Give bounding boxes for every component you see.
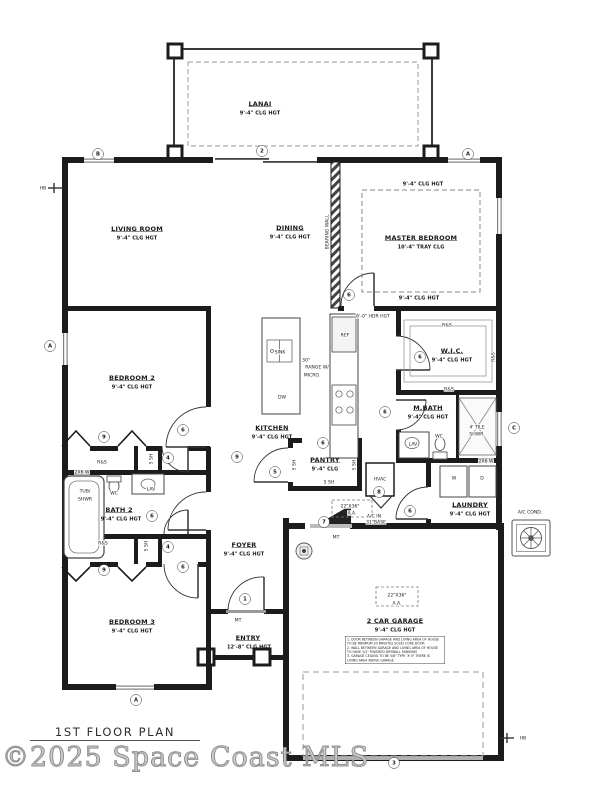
label-laundry: LAUNDRY xyxy=(452,501,488,509)
label-mt: MT xyxy=(234,617,242,623)
marker-8: 8 xyxy=(373,486,385,498)
label-9-4-clg-hgt: 9'-4" CLG HGT xyxy=(252,434,293,440)
garage-utility-icon xyxy=(296,543,312,559)
label-2x6-w: 2X6 W xyxy=(478,458,494,464)
label-9-4-clg-hgt: 9'-4" CLG HGT xyxy=(408,414,449,420)
label-r-s: R&S xyxy=(444,386,455,392)
marker-a: A xyxy=(44,340,56,352)
label-9-4-clg-hgt: 9'-4" CLG HGT xyxy=(240,110,281,116)
label-9-4-clg-hgt: 9'-4" CLG HGT xyxy=(224,551,265,557)
marker-9: 9 xyxy=(231,451,243,463)
label-2x6-w: 2X6 W xyxy=(74,469,90,475)
label-tub: TUB/ xyxy=(79,488,91,494)
label-9-4-clg-hgt: 9'-4" CLG HGT xyxy=(101,516,142,522)
label-range-w: RANGE W/ xyxy=(305,364,330,370)
garage-notes-box: 1. DOOR BETWEEN GARAGE AND LIVING AREA O… xyxy=(345,636,445,664)
garage-note-line: LIVING AREA ABOVE GARAGE xyxy=(347,658,443,662)
label-22-x36: 22"X36" xyxy=(340,503,360,509)
marker-2: 2 xyxy=(256,145,268,157)
label-hb: HB xyxy=(519,735,527,741)
label-6-0-hdr-hgt: 6'-0" HDR HGT xyxy=(356,313,391,319)
label-dw: DW xyxy=(277,394,286,400)
label-d: D xyxy=(480,475,485,481)
marker-a: A xyxy=(462,148,474,160)
label-sink: SINK xyxy=(274,349,286,355)
marker-a: A xyxy=(130,694,142,706)
label-bath-2: BATH 2 xyxy=(105,506,132,514)
label-wc: WC xyxy=(110,490,119,496)
label-w: W xyxy=(451,475,457,481)
label-bedroom-2: BEDROOM 2 xyxy=(109,374,155,382)
label-entry: ENTRY xyxy=(236,634,261,642)
floor-plan-linework xyxy=(0,0,604,800)
label-9-4-clg-hgt: 9'-4" CLG HGT xyxy=(270,234,311,240)
label-30: 30" xyxy=(302,357,311,363)
marker-3: 3 xyxy=(388,757,400,769)
marker-9: 9 xyxy=(98,564,110,576)
label-bearing-wall: BEARING WALL xyxy=(324,214,330,250)
label-r-s: R&S xyxy=(97,459,108,465)
label-lav: LAV xyxy=(146,486,156,492)
label-9-4-clg: 9'-4" CLG xyxy=(312,466,339,472)
label-micro: MICRO. xyxy=(303,372,321,378)
label-a-a: A.A. xyxy=(347,510,357,516)
marker-9: 9 xyxy=(98,431,110,443)
marker-6: 6 xyxy=(414,351,426,363)
label-m-bath: M.BATH xyxy=(413,404,442,412)
marker-6: 6 xyxy=(146,510,158,522)
label-22-x36: 22"X36" xyxy=(387,592,407,598)
label-master-bedroom: MASTER BEDROOM xyxy=(385,234,457,242)
label-12-8-clg-hgt: 12'-8" CLG HGT xyxy=(227,644,271,650)
label-9-4-clg-hgt: 9'-4" CLG HGT xyxy=(432,357,473,363)
marker-4: 4 xyxy=(162,452,174,464)
hose-bib-icon xyxy=(48,183,62,193)
floor-plan-page: 1. DOOR BETWEEN GARAGE AND LIVING AREA O… xyxy=(0,0,604,800)
label-wc: WC xyxy=(435,433,444,439)
label-4-tile: 4' TILE xyxy=(469,424,485,430)
label-lanai: LANAI xyxy=(248,100,271,108)
marker-6: 6 xyxy=(379,406,391,418)
label-dining: DINING xyxy=(276,224,304,232)
label-pantry: PANTRY xyxy=(310,456,340,464)
label-bedroom-3: BEDROOM 3 xyxy=(109,618,155,626)
label-lav: LAV xyxy=(408,441,418,447)
marker-b: B xyxy=(92,148,104,160)
label-5-sh: 5 SH xyxy=(323,479,335,485)
label-5-sh: 5 SH xyxy=(148,453,154,465)
label-hvac: HVAC xyxy=(373,476,387,482)
label-5-sh: 5 SH xyxy=(351,459,357,471)
label-r-s: R&S xyxy=(98,540,109,546)
label-foyer: FOYER xyxy=(232,541,257,549)
label-9-4-clg-hgt: 9'-4" CLG HGT xyxy=(375,627,416,633)
label-9-4-clg-hgt: 9'-4" CLG HGT xyxy=(450,511,491,517)
label-9-4-clg-hgt: 9'-4" CLG HGT xyxy=(112,384,153,390)
label-9-4-clg-hgt: 9'-4" CLG HGT xyxy=(117,235,158,241)
label-shwr: SHWR xyxy=(77,496,92,502)
plan-title: 1ST FLOOR PLAN xyxy=(30,725,200,741)
label-a-c-cond: A/C COND. xyxy=(517,509,543,515)
label-a-c-in: A/C IN xyxy=(366,513,381,519)
marker-6: 6 xyxy=(177,424,189,436)
label-9-4-clg-hgt: 9'-4" CLG HGT xyxy=(112,628,153,634)
label-r-s: R&S xyxy=(490,352,496,363)
label-10-4-tray-clg: 10'-4" TRAY CLG xyxy=(398,244,445,250)
marker-c: C xyxy=(508,422,520,434)
marker-6: 6 xyxy=(343,289,355,301)
marker-7: 7 xyxy=(318,516,330,528)
label-ref: REF xyxy=(340,332,350,338)
marker-6: 6 xyxy=(177,561,189,573)
label-2-car-garage: 2 CAR GARAGE xyxy=(367,617,423,625)
label-31-base: 31"BASE xyxy=(365,519,386,525)
label-hb: HB xyxy=(39,185,47,191)
label-w-i-c: W.I.C. xyxy=(441,347,463,355)
label-mt: MT xyxy=(332,534,340,540)
label-a-a: A.A. xyxy=(392,600,402,606)
label-shwr: SHWR. xyxy=(469,431,485,437)
label-5-sh: 5 SH xyxy=(143,540,149,552)
marker-6: 6 xyxy=(404,505,416,517)
label-kitchen: KITCHEN xyxy=(255,424,288,432)
label-9-4-clg-hgt: 9'-4" CLG HGT xyxy=(399,295,440,301)
label-living-room: LIVING ROOM xyxy=(111,225,163,233)
label-9-4-clg-hgt: 9'-4" CLG HGT xyxy=(403,181,444,187)
marker-5: 5 xyxy=(269,466,281,478)
lanai-structure xyxy=(168,44,438,159)
mls-watermark: ©2025 Space Coast MLS xyxy=(2,742,369,773)
marker-6: 6 xyxy=(317,437,329,449)
marker-1: 1 xyxy=(239,593,251,605)
marker-4: 4 xyxy=(162,541,174,553)
label-r-s: R&S xyxy=(442,322,453,328)
label-5-sh: 5 SH xyxy=(291,459,297,471)
